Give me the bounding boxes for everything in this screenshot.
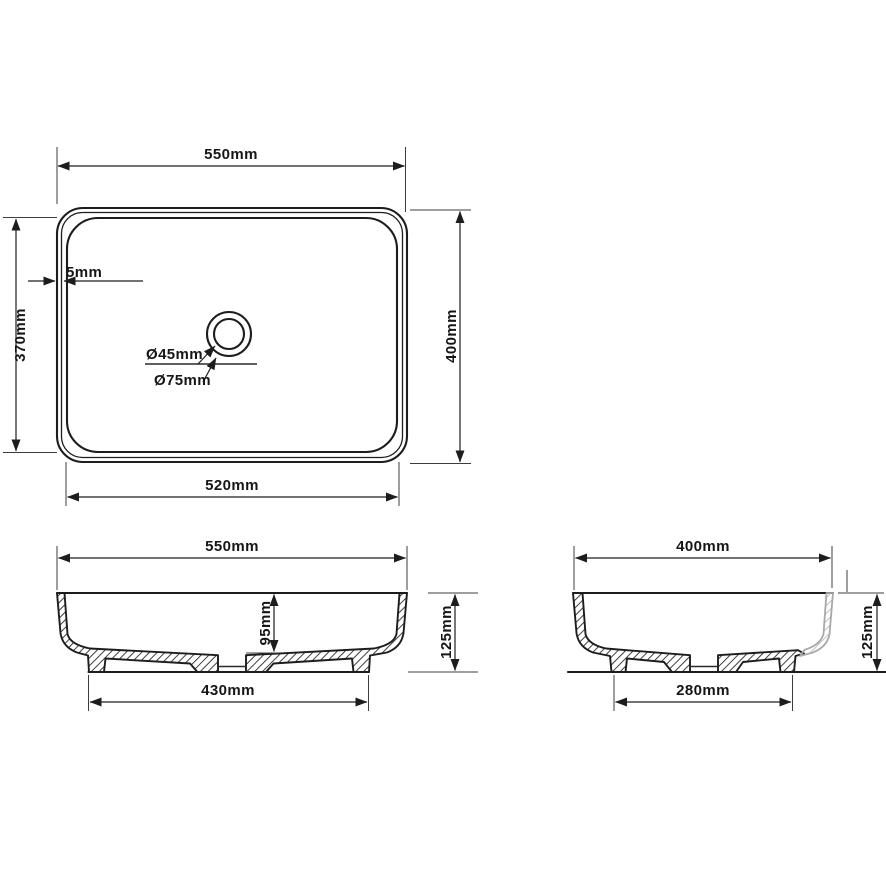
basin-drawing-svg: 550mm 400mm 370mm 520mm 5mm bbox=[0, 0, 886, 886]
section-left-wall-and-floor bbox=[573, 593, 690, 672]
dimension-label-drain-hole: Ø45mm bbox=[146, 346, 203, 363]
dimension-side-width: 400mm bbox=[574, 538, 832, 590]
dimension-side-base-width: 280mm bbox=[614, 675, 793, 711]
dimension-right-height: 400mm bbox=[410, 210, 471, 464]
dimension-label-520mm: 520mm bbox=[205, 477, 259, 494]
section-right-wall-phantom bbox=[800, 593, 833, 656]
dimension-label-drain-recess: Ø75mm bbox=[154, 372, 211, 389]
dimension-label-5mm: 5mm bbox=[66, 264, 102, 281]
dimension-label-95mm: 95mm bbox=[257, 601, 274, 646]
dimension-left-inner-height: 370mm bbox=[3, 218, 57, 453]
dimension-label-280mm: 280mm bbox=[676, 682, 730, 699]
dimension-front-width: 550mm bbox=[57, 538, 407, 590]
dimension-label-430mm: 430mm bbox=[201, 682, 255, 699]
dimension-label-370mm: 370mm bbox=[12, 308, 29, 362]
dimension-bowl-depth: 95mm bbox=[246, 595, 278, 654]
section-floor-right-of-drain bbox=[718, 650, 804, 672]
technical-drawing-sheet: 550mm 400mm 370mm 520mm 5mm bbox=[0, 0, 886, 886]
dimension-label-400mm: 400mm bbox=[443, 309, 460, 363]
dimension-front-base-width: 430mm bbox=[89, 675, 369, 711]
section-left-wall-and-floor bbox=[57, 593, 218, 672]
top-view: 550mm 400mm 370mm 520mm 5mm bbox=[3, 146, 471, 506]
dimension-label-125mm: 125mm bbox=[438, 605, 455, 659]
basin-bowl-opening-outline bbox=[67, 218, 397, 452]
dimension-label-550mm: 550mm bbox=[205, 538, 259, 555]
front-section-view: 550mm 95mm 125mm 430mm bbox=[57, 538, 478, 711]
dimension-label-550mm: 550mm bbox=[204, 146, 258, 163]
dimension-top-width: 550mm bbox=[57, 146, 406, 212]
side-section-view: 400mm 125mm 280mm bbox=[568, 538, 886, 711]
drain-hole-circle bbox=[214, 319, 244, 349]
callout-wall-thickness: 5mm bbox=[28, 264, 143, 281]
dimension-label-400mm: 400mm bbox=[676, 538, 730, 555]
dimension-side-height: 125mm bbox=[838, 593, 884, 671]
dimension-bottom-inner-width: 520mm bbox=[66, 462, 399, 506]
dimension-label-125mm: 125mm bbox=[859, 605, 876, 659]
basin-outer-rim-outline bbox=[57, 208, 407, 462]
basin-rim-inner-edge bbox=[62, 213, 403, 458]
dimension-front-height: 125mm bbox=[408, 593, 478, 672]
